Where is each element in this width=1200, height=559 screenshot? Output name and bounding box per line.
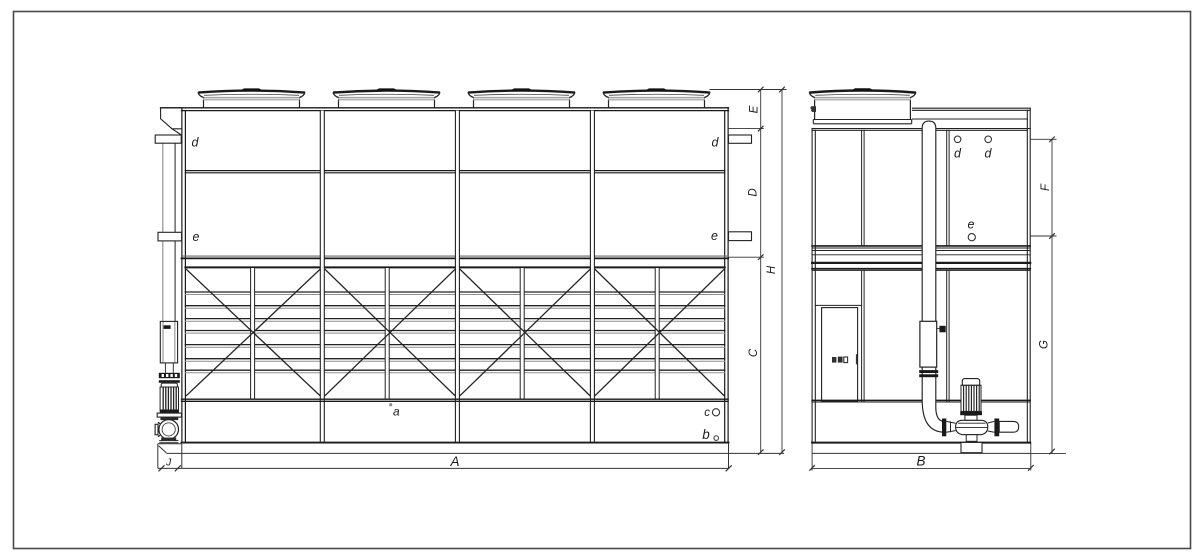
- svg-text:d: d: [712, 136, 720, 150]
- svg-text:B: B: [917, 454, 926, 469]
- svg-text:A: A: [450, 454, 460, 469]
- svg-text:d: d: [954, 147, 962, 161]
- svg-text:e: e: [711, 229, 718, 243]
- svg-text:e: e: [193, 230, 200, 244]
- svg-text:C: C: [748, 348, 760, 357]
- svg-text:c: c: [704, 407, 710, 419]
- svg-text:d: d: [985, 147, 993, 161]
- svg-text:H: H: [766, 265, 778, 274]
- svg-text:e: e: [968, 218, 975, 232]
- svg-text:G: G: [1039, 340, 1051, 349]
- svg-text:a: a: [393, 405, 400, 419]
- svg-text:E: E: [749, 105, 761, 113]
- svg-text:b: b: [702, 427, 710, 442]
- svg-text:F: F: [1040, 183, 1052, 191]
- svg-text:D: D: [748, 188, 760, 196]
- svg-text:J: J: [165, 457, 172, 469]
- svg-text:d: d: [192, 136, 200, 150]
